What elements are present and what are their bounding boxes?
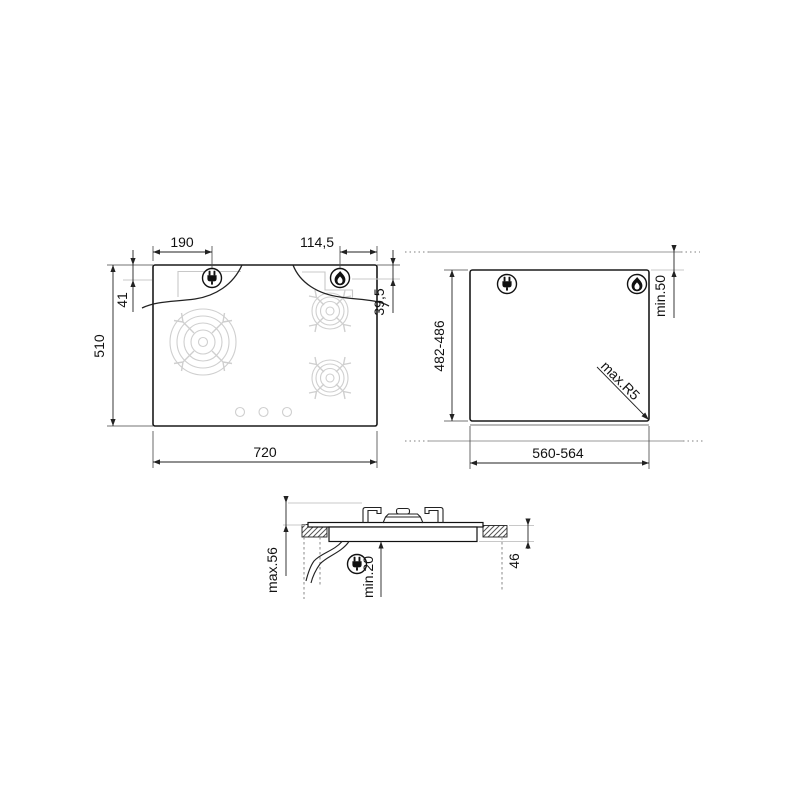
dim-label: 510 <box>91 334 107 358</box>
cutout-outline <box>470 270 649 421</box>
dim-hob-depth: 510 <box>91 265 153 426</box>
dim-label: 41 <box>114 292 130 308</box>
dim-label: max.56 <box>264 547 280 593</box>
gas-flame-icon <box>331 269 350 288</box>
dim-label: 114,5 <box>300 234 334 250</box>
dim-label: 190 <box>170 234 194 250</box>
dim-label: 560-564 <box>532 445 584 461</box>
gas-flame-icon <box>628 275 647 294</box>
installation-section-view: max.56 min.20 46 <box>264 496 534 599</box>
installation-drawing-page: 190 114,5 41 39,5 <box>0 0 800 800</box>
dim-hob-width: 720 <box>153 431 377 468</box>
hob-glass-section <box>308 523 483 528</box>
dim-plug-from-left: 190 <box>153 234 212 261</box>
hob-installation-diagram: 190 114,5 41 39,5 <box>0 0 800 800</box>
hob-top-view: 190 114,5 41 39,5 <box>91 234 400 468</box>
dim-label: min.20 <box>360 556 376 598</box>
dim-label: min.50 <box>652 275 668 317</box>
dim-label: 39,5 <box>371 288 387 315</box>
dim-label: 482-486 <box>431 320 447 372</box>
hob-casing-section <box>329 527 477 542</box>
burner-section <box>363 508 443 524</box>
hob-body-outline <box>153 265 377 426</box>
dim-label: 46 <box>506 553 522 569</box>
dim-plug-from-top: 41 <box>107 250 153 312</box>
worktop-section-right <box>483 526 507 538</box>
power-cable <box>306 542 349 584</box>
dim-cutout-width: 560-564 <box>470 426 649 469</box>
dim-top-clearance: min.50 <box>651 245 684 318</box>
dim-cutout-depth: 482-486 <box>431 270 468 421</box>
dim-bottom-clearance: min.20 <box>360 542 384 599</box>
power-plug-icon <box>203 269 222 288</box>
dim-label: 720 <box>253 444 277 460</box>
worktop-cutout-view: 482-486 560-564 min.50 max.R5 <box>405 245 703 469</box>
dim-flame-from-right: 114,5 <box>300 234 377 261</box>
power-plug-icon <box>498 275 517 294</box>
